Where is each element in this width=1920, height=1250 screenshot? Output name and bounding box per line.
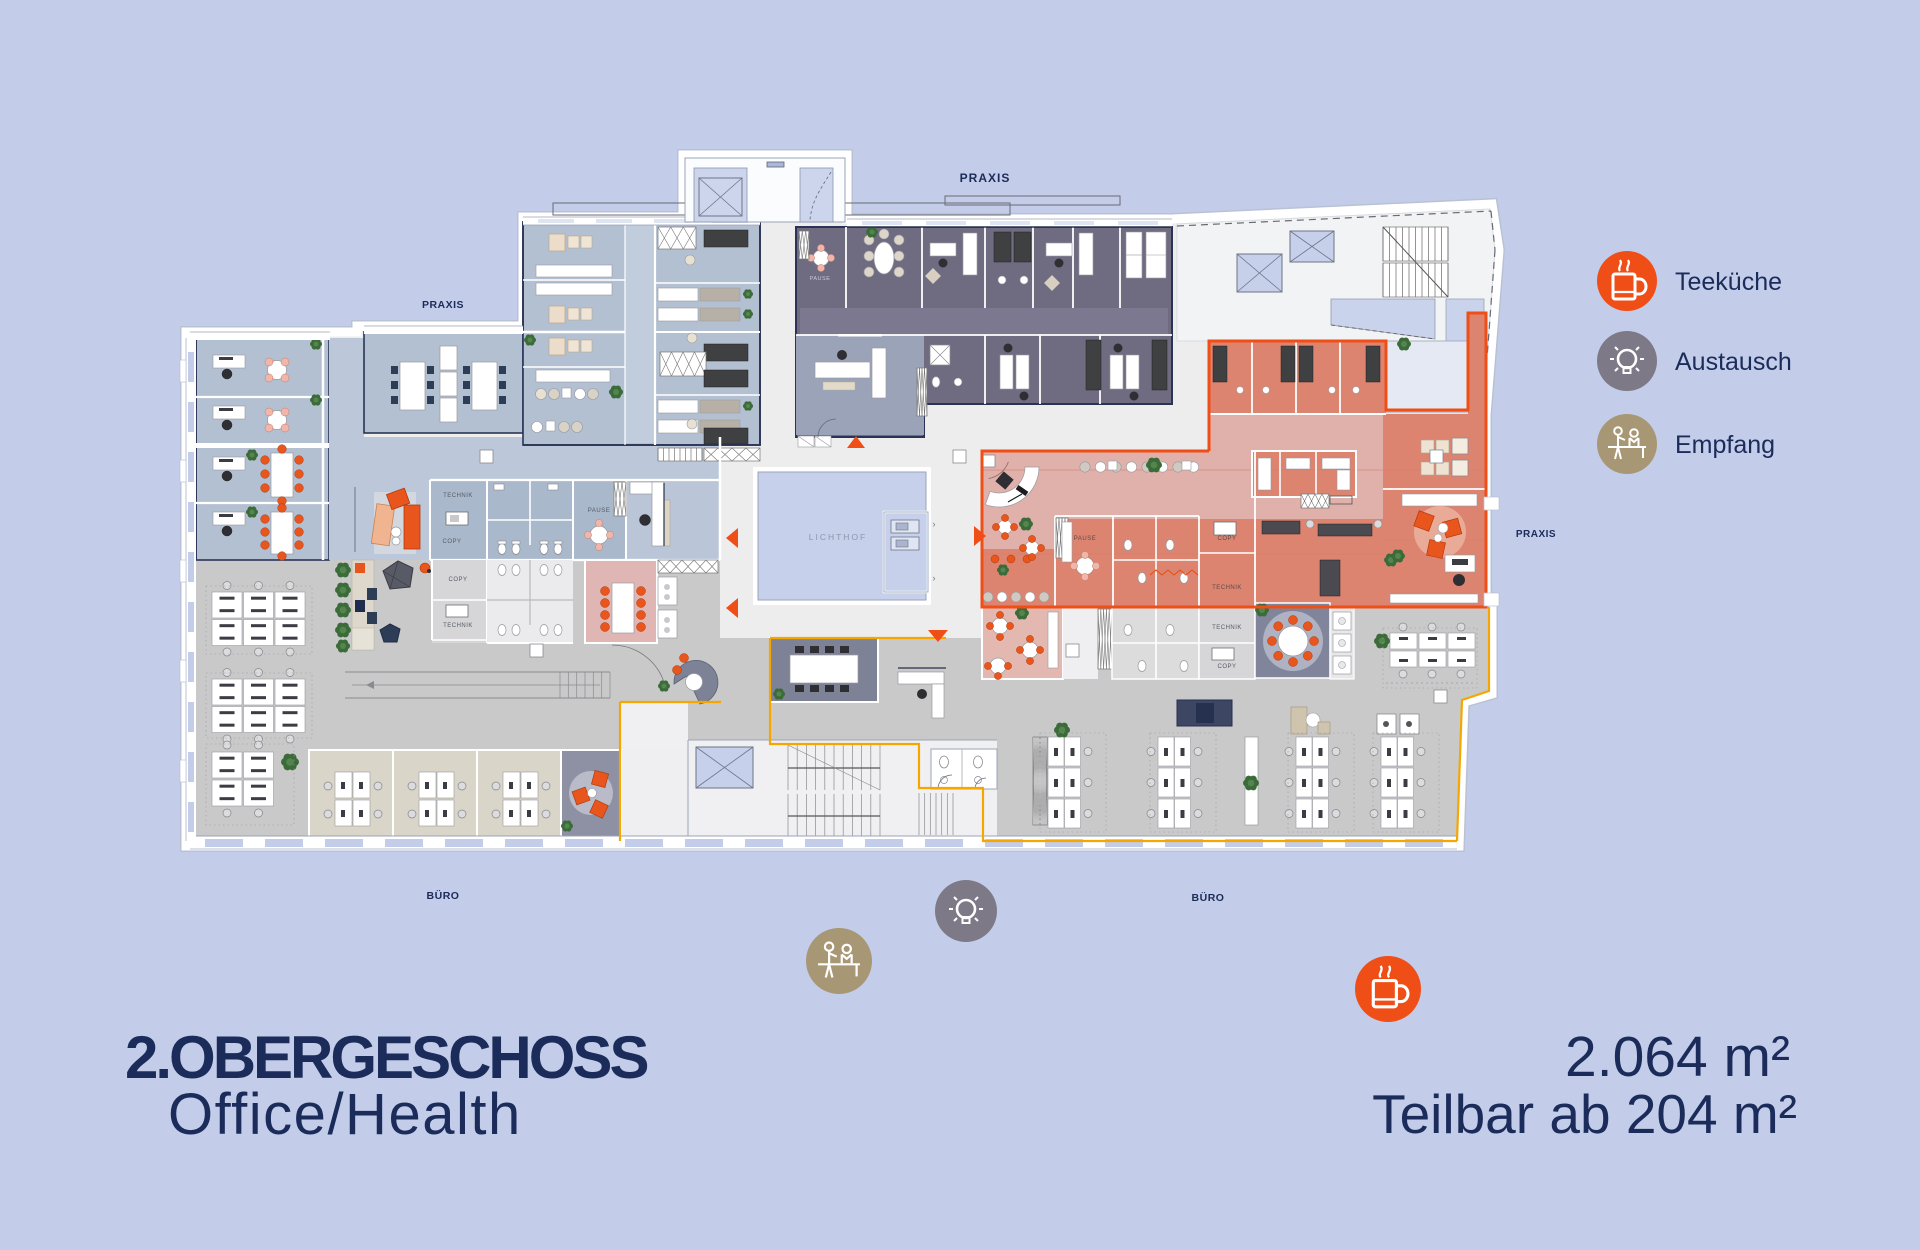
svg-text:COPY: COPY xyxy=(1217,664,1236,670)
svg-text:PRAXIS: PRAXIS xyxy=(960,171,1011,185)
svg-text:BÜRO: BÜRO xyxy=(427,889,460,902)
svg-text:PAUSE: PAUSE xyxy=(588,508,610,514)
svg-text:PRAXIS: PRAXIS xyxy=(422,299,464,311)
svg-text:TECHNIK: TECHNIK xyxy=(443,493,473,499)
svg-text:COPY: COPY xyxy=(448,577,467,583)
svg-text:2.OBERGESCHOSS: 2.OBERGESCHOSS xyxy=(125,1024,647,1091)
svg-text:TECHNIK: TECHNIK xyxy=(443,623,473,629)
svg-text:Teilbar ab 204 m²: Teilbar ab 204 m² xyxy=(1372,1083,1797,1145)
svg-text:Austausch: Austausch xyxy=(1675,348,1792,376)
svg-text:BÜRO: BÜRO xyxy=(1192,891,1225,904)
svg-text:Teeküche: Teeküche xyxy=(1675,268,1782,296)
svg-text:TECHNIK: TECHNIK xyxy=(1212,585,1242,591)
svg-text:COPY: COPY xyxy=(1217,536,1236,542)
svg-text:2.064 m²: 2.064 m² xyxy=(1565,1025,1790,1089)
svg-text:Office/Health: Office/Health xyxy=(168,1082,522,1147)
svg-text:COPY: COPY xyxy=(442,539,461,545)
svg-text:›: › xyxy=(933,573,936,583)
svg-text:PAUSE: PAUSE xyxy=(1074,536,1096,542)
svg-text:PAUSE: PAUSE xyxy=(810,276,831,282)
svg-text:PRAXIS: PRAXIS xyxy=(1516,529,1556,540)
svg-text:Empfang: Empfang xyxy=(1675,431,1775,459)
svg-text:›: › xyxy=(933,519,936,529)
svg-text:LICHTHOF: LICHTHOF xyxy=(809,532,868,542)
svg-text:TECHNIK: TECHNIK xyxy=(1212,625,1242,631)
